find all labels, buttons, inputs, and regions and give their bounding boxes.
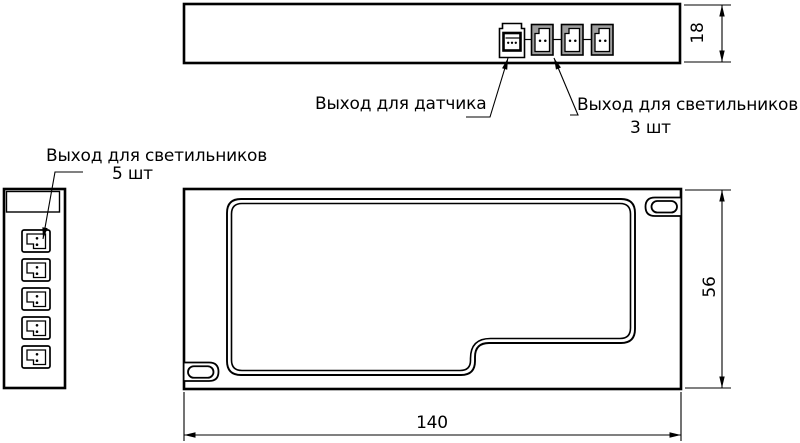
dim-text-18: 18 bbox=[688, 3, 710, 63]
label-lamp-output-top: Выход для светильников bbox=[577, 95, 798, 115]
lamp-connector-side-5 bbox=[22, 346, 50, 368]
lamp-connector-side-2 bbox=[22, 259, 50, 281]
lamp-connector-side-1 bbox=[22, 230, 50, 252]
lamp-connector-side-3 bbox=[22, 288, 50, 310]
lamp-connector-side-4 bbox=[22, 317, 50, 339]
lamp-connector-top-2 bbox=[562, 25, 584, 56]
mount-slot-bottom-left bbox=[185, 363, 219, 382]
label-lamp-output-top-qty: 3 шт bbox=[630, 118, 671, 138]
lamp-connector-top-3 bbox=[592, 25, 614, 56]
leader-lamp-top bbox=[554, 58, 578, 115]
dim-text-56: 56 bbox=[700, 257, 722, 317]
label-sensor-output: Выход для датчика bbox=[315, 94, 486, 114]
front-view bbox=[184, 189, 681, 389]
drawing-linework bbox=[0, 0, 800, 443]
sensor-connector-icon bbox=[500, 24, 525, 58]
front-view-body bbox=[184, 189, 681, 389]
side-top-band bbox=[7, 192, 60, 213]
top-view bbox=[184, 4, 680, 63]
label-lamp-output-side: Выход для светильников bbox=[46, 146, 267, 166]
dim-text-140: 140 bbox=[412, 413, 452, 433]
label-lamp-output-side-qty: 5 шт bbox=[112, 164, 153, 184]
side-view bbox=[4, 189, 65, 388]
mount-slot-top-right bbox=[646, 198, 681, 217]
lamp-connector-top-1 bbox=[532, 25, 554, 56]
technical-drawing: Выход для датчика Выход для светильников… bbox=[0, 0, 800, 443]
